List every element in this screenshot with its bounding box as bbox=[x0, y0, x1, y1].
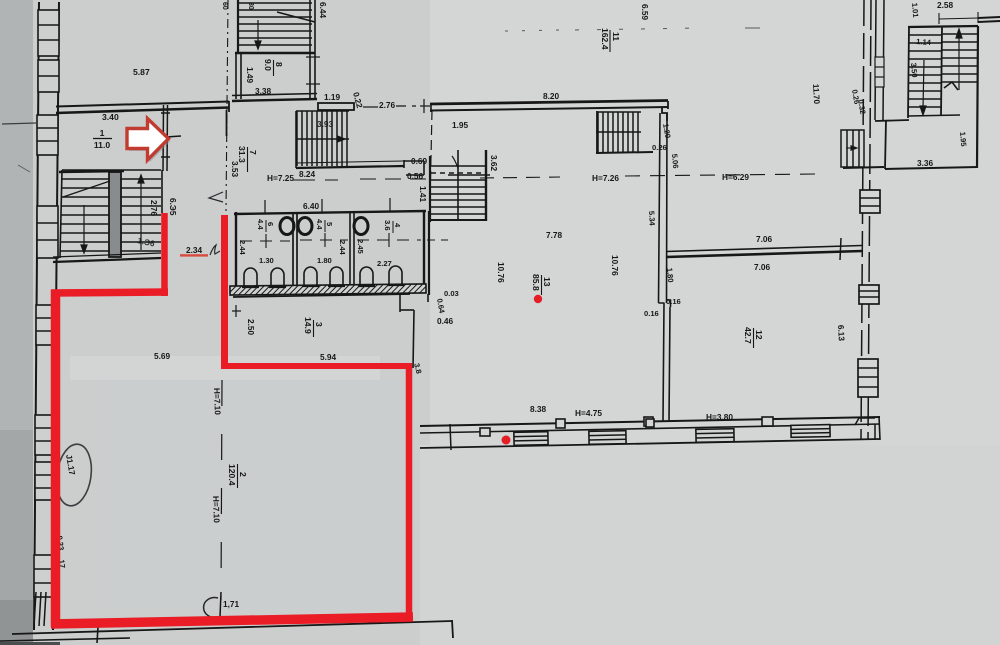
svg-text:H=7.25: H=7.25 bbox=[267, 173, 294, 183]
svg-text:6.44: 6.44 bbox=[318, 2, 328, 19]
svg-text:1.01: 1.01 bbox=[910, 2, 920, 18]
svg-text:12: 12 bbox=[754, 330, 764, 340]
svg-text:6.13: 6.13 bbox=[836, 325, 847, 342]
svg-text:0.16: 0.16 bbox=[666, 297, 681, 306]
svg-text:5.94: 5.94 bbox=[320, 352, 337, 362]
svg-text:1.30: 1.30 bbox=[259, 256, 274, 265]
svg-text:5.87: 5.87 bbox=[133, 67, 150, 77]
svg-text:1.95: 1.95 bbox=[958, 131, 968, 147]
svg-text:14.9: 14.9 bbox=[303, 317, 313, 334]
svg-text:1.41: 1.41 bbox=[418, 186, 428, 203]
svg-text:85.8: 85.8 bbox=[531, 274, 541, 291]
svg-text:6.Э5: 6.Э5 bbox=[168, 198, 178, 216]
svg-text:2.58: 2.58 bbox=[937, 0, 954, 10]
svg-text:2.50: 2.50 bbox=[246, 319, 256, 336]
svg-text:1.95: 1.95 bbox=[452, 120, 469, 130]
svg-text:7: 7 bbox=[248, 150, 258, 155]
svg-text:0.03: 0.03 bbox=[444, 289, 459, 298]
svg-text:10.76: 10.76 bbox=[496, 262, 506, 283]
svg-text:11.70: 11.70 bbox=[811, 84, 822, 105]
svg-text:6.40: 6.40 bbox=[303, 201, 320, 211]
svg-text:3.38: 3.38 bbox=[255, 86, 272, 96]
svg-text:2.44: 2.44 bbox=[238, 240, 247, 256]
svg-text:4.4: 4.4 bbox=[256, 219, 265, 230]
svg-text:H=7.10: H=7.10 bbox=[211, 496, 222, 524]
svg-text:2.44: 2.44 bbox=[338, 240, 347, 256]
svg-text:0.16: 0.16 bbox=[644, 309, 659, 318]
svg-text:1: 1 bbox=[100, 128, 105, 138]
svg-text:6: 6 bbox=[266, 222, 275, 226]
svg-text:2.34: 2.34 bbox=[186, 245, 203, 255]
svg-text:2.27: 2.27 bbox=[377, 259, 392, 268]
svg-text:3.40: 3.40 bbox=[102, 112, 119, 122]
svg-text:3.93: 3.93 bbox=[317, 119, 334, 129]
svg-text:2.76: 2.76 bbox=[149, 200, 159, 217]
svg-text:7.06: 7.06 bbox=[756, 234, 773, 244]
svg-text:3.53: 3.53 bbox=[230, 161, 240, 178]
svg-text:1.14: 1.14 bbox=[916, 37, 932, 47]
svg-text:5.06: 5.06 bbox=[670, 153, 680, 169]
svg-text:162.4: 162.4 bbox=[600, 28, 610, 50]
svg-text:3.62: 3.62 bbox=[489, 155, 499, 172]
svg-text:10.76: 10.76 bbox=[610, 255, 620, 276]
svg-text:3.6: 3.6 bbox=[383, 220, 392, 231]
svg-text:3: 3 bbox=[314, 322, 324, 327]
svg-text:7.78: 7.78 bbox=[546, 230, 563, 240]
svg-text:8.20: 8.20 bbox=[543, 91, 560, 101]
svg-text:13: 13 bbox=[542, 277, 552, 287]
svg-text:5.69: 5.69 bbox=[154, 351, 171, 361]
svg-text:120.4: 120.4 bbox=[227, 464, 237, 486]
svg-text:5.34: 5.34 bbox=[647, 211, 657, 227]
svg-text:3.50: 3.50 bbox=[909, 62, 919, 78]
svg-text:60: 60 bbox=[221, 2, 228, 10]
svg-text:11.0: 11.0 bbox=[94, 140, 110, 150]
svg-text:8.24: 8.24 bbox=[299, 169, 316, 179]
svg-text:0.46: 0.46 bbox=[437, 316, 454, 326]
svg-text:9.0: 9.0 bbox=[263, 59, 273, 71]
svg-text:8: 8 bbox=[274, 62, 284, 67]
svg-text:42.7: 42.7 bbox=[743, 327, 753, 344]
svg-text:11: 11 bbox=[611, 32, 621, 41]
svg-text:H=6.29: H=6.29 bbox=[722, 172, 749, 182]
svg-text:H=7.10: H=7.10 bbox=[212, 388, 223, 416]
svg-text:7.06: 7.06 bbox=[754, 262, 771, 272]
svg-text:1.49: 1.49 bbox=[245, 67, 255, 84]
svg-text:6.59: 6.59 bbox=[640, 4, 650, 21]
svg-text:2.45: 2.45 bbox=[356, 239, 365, 255]
svg-text:0.69: 0.69 bbox=[411, 156, 428, 166]
svg-text:1.80: 1.80 bbox=[317, 256, 332, 265]
svg-text:H=4.75: H=4.75 bbox=[575, 408, 602, 418]
svg-text:2.76: 2.76 bbox=[379, 100, 396, 110]
svg-text:4.4: 4.4 bbox=[315, 219, 324, 230]
svg-text:1.80: 1.80 bbox=[665, 267, 675, 283]
svg-text:2: 2 bbox=[238, 472, 248, 477]
svg-text:1.19: 1.19 bbox=[324, 92, 341, 102]
svg-text:3.36: 3.36 bbox=[917, 158, 934, 168]
svg-text:1,71: 1,71 bbox=[223, 599, 240, 609]
svg-text:H=7.26: H=7.26 bbox=[592, 173, 619, 183]
svg-text:8.38: 8.38 bbox=[530, 404, 547, 414]
